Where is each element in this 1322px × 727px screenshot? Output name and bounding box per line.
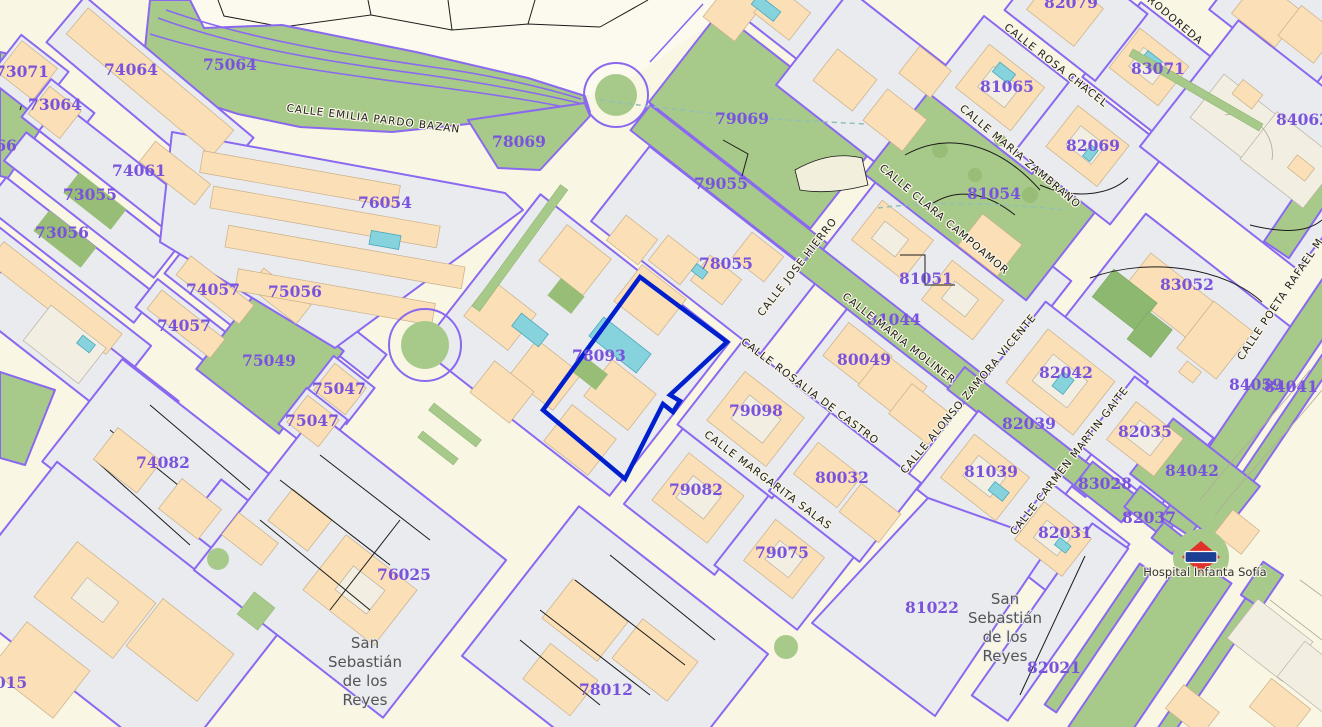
parcel-label-81022: 81022 — [905, 598, 959, 617]
parcel-label-75047: 75047 — [312, 379, 366, 398]
parcel-label-75064: 75064 — [203, 55, 257, 74]
parcel-label-84042: 84042 — [1165, 461, 1219, 480]
parcel-label-83071: 83071 — [1131, 59, 1185, 78]
parcel-label-79082: 79082 — [669, 480, 723, 499]
parcel-label-83052: 83052 — [1160, 275, 1214, 294]
poi-label: Hospital Infanta Sofía — [1143, 565, 1266, 579]
parcel-label-74061: 74061 — [112, 161, 166, 180]
city-label: Reyes — [343, 691, 388, 709]
parcel-label-81051: 81051 — [899, 269, 953, 288]
roundabout — [595, 74, 637, 116]
city-label: Sebastián — [968, 609, 1042, 627]
city-label: Reyes — [983, 647, 1028, 665]
parcel-label-82035: 82035 — [1118, 422, 1172, 441]
parcel-label-79075: 79075 — [755, 543, 809, 562]
parcel-label-79055: 79055 — [694, 174, 748, 193]
parcel-label-82039: 82039 — [1002, 414, 1056, 433]
parcel-label-78012: 78012 — [579, 680, 633, 699]
parcel-label-80032: 80032 — [815, 468, 869, 487]
parcel-label-73055: 73055 — [63, 185, 117, 204]
parcel-label-83028: 83028 — [1078, 474, 1132, 493]
city-label: de los — [983, 628, 1028, 646]
parcel-label-82037: 82037 — [1122, 508, 1176, 527]
parcel-label-79069: 79069 — [715, 109, 769, 128]
parcel-label-82042: 82042 — [1039, 363, 1093, 382]
mini-roundabout — [207, 548, 229, 570]
parcel-label-74057: 74057 — [157, 316, 211, 335]
parcel-label-73071: 73071 — [0, 62, 49, 81]
city-label: de los — [343, 672, 388, 690]
parcel-label-73056: 73056 — [35, 223, 89, 242]
parcel-label-74082: 74082 — [136, 453, 190, 472]
parcel-label-82031: 82031 — [1038, 523, 1092, 542]
parcel-label-76025: 76025 — [377, 565, 431, 584]
parcel-label-78069: 78069 — [492, 132, 546, 151]
city-label: San — [991, 590, 1019, 608]
parcel-label-78055: 78055 — [699, 254, 753, 273]
roundabout — [401, 321, 449, 369]
parcel-label-78093: 78093 — [572, 346, 626, 365]
parcel-label-80049: 80049 — [837, 350, 891, 369]
parcel-label-81065: 81065 — [980, 77, 1034, 96]
mini-roundabout — [774, 635, 798, 659]
parcel-label-74064: 74064 — [104, 60, 158, 79]
parcel-label-82021: 82021 — [1027, 658, 1081, 677]
parcel-label-66: 66 — [0, 136, 17, 155]
parcel-label-84041: 84041 — [1264, 377, 1318, 396]
map-viewport[interactable]: 7307174064750646673064740617305573056760… — [0, 0, 1322, 727]
parcel-label-84062: 84062 — [1276, 110, 1322, 129]
parcel-label-81039: 81039 — [964, 462, 1018, 481]
parcel-label-79098: 79098 — [729, 401, 783, 420]
map-canvas[interactable]: 7307174064750646673064740617305573056760… — [0, 0, 1322, 727]
parcel-label-75047: 75047 — [285, 411, 339, 430]
parcel-label-82069: 82069 — [1066, 136, 1120, 155]
metro-logo-band — [1185, 552, 1217, 563]
city-label: Sebastián — [328, 653, 402, 671]
parcel-label-76054: 76054 — [358, 193, 412, 212]
parcel-label-015: 015 — [0, 673, 27, 692]
parcel-label-81054: 81054 — [967, 184, 1021, 203]
city-label: San — [351, 634, 379, 652]
parcel-label-74057: 74057 — [186, 280, 240, 299]
parcel-label-73064: 73064 — [28, 95, 82, 114]
parcel-label-75056: 75056 — [268, 282, 322, 301]
parcel-label-75049: 75049 — [242, 351, 296, 370]
parcel-label-82079: 82079 — [1044, 0, 1098, 12]
